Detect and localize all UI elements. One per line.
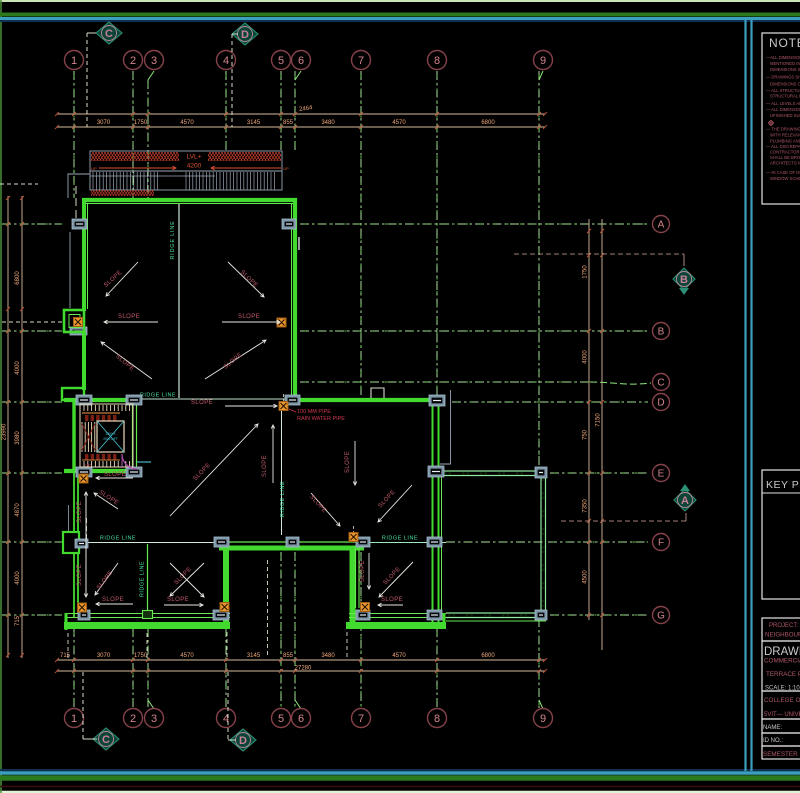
svg-text:COLLEGE OF: COLLEGE OF — [764, 697, 800, 704]
svg-text:5: 5 — [278, 55, 284, 67]
svg-text:4: 4 — [223, 55, 229, 67]
svg-text:2000 X: 2000 X — [105, 432, 116, 436]
svg-text:100 MM PIPE: 100 MM PIPE — [297, 409, 331, 415]
svg-text:6800: 6800 — [481, 653, 495, 659]
svg-text:— ALL DISCREPANCIES IN DR: — ALL DISCREPANCIES IN DR — [766, 144, 800, 149]
svg-text:4870: 4870 — [15, 503, 21, 517]
svg-text:STRUCTURAL DRAWINGS: STRUCTURAL DRAWINGS — [770, 94, 800, 99]
svg-text:B: B — [680, 274, 688, 286]
svg-text:855: 855 — [283, 120, 294, 126]
svg-text:D: D — [657, 398, 664, 409]
svg-text:715: 715 — [60, 653, 71, 659]
svg-text:4000: 4000 — [15, 361, 21, 375]
svg-text:—ALL DIMENSIONS ARE IN: —ALL DIMENSIONS ARE IN — [766, 55, 800, 60]
svg-text:SLOPE: SLOPE — [104, 472, 126, 478]
svg-text:COMMERCIAL BU: COMMERCIAL BU — [764, 658, 800, 665]
svg-text:CONTRACTOR SHALL VERIFY: CONTRACTOR SHALL VERIFY — [770, 150, 800, 155]
svg-text:— ALL LEVELS ARE IN METRES: — ALL LEVELS ARE IN METRES — [766, 101, 800, 106]
svg-text:855: 855 — [283, 653, 294, 659]
svg-text:7150: 7150 — [596, 413, 602, 427]
svg-text:C: C — [105, 28, 113, 40]
svg-text:4200: 4200 — [187, 163, 202, 170]
svg-text:5VIT— UNIVER: 5VIT— UNIVER — [764, 712, 800, 718]
svg-text:2: 2 — [130, 55, 136, 67]
svg-text:2000 LIFT: 2000 LIFT — [103, 437, 118, 441]
svg-text:UP: UP — [283, 166, 289, 171]
svg-text:E: E — [658, 469, 665, 480]
svg-text:3070: 3070 — [97, 653, 111, 659]
svg-text:RIDGE LINE: RIDGE LINE — [140, 393, 176, 399]
svg-text:715: 715 — [15, 615, 21, 626]
svg-text:TERRACE PLA: TERRACE PLA — [766, 671, 800, 678]
svg-text:3980: 3980 — [15, 431, 21, 445]
svg-text:C: C — [102, 734, 110, 746]
svg-text:SLOPE: SLOPE — [102, 597, 124, 603]
svg-text:4000: 4000 — [583, 350, 589, 364]
svg-text:ARCHITECTS NOTICE BEFORE: ARCHITECTS NOTICE BEFORE — [770, 161, 800, 166]
svg-text:3145: 3145 — [247, 120, 261, 126]
svg-text:3480: 3480 — [321, 120, 335, 126]
svg-text:SLOPE: SLOPE — [118, 314, 140, 320]
svg-text:C: C — [657, 378, 664, 389]
svg-text:750: 750 — [583, 429, 589, 440]
svg-text:7: 7 — [358, 713, 364, 725]
svg-text:SHALL BE BROUGHT TO THE: SHALL BE BROUGHT TO THE — [770, 155, 800, 160]
svg-text:7350: 7350 — [583, 499, 589, 513]
svg-text:8: 8 — [434, 713, 440, 725]
svg-text:SLOPE: SLOPE — [77, 501, 83, 523]
svg-text:SEMESTER: SEMESTER — [763, 751, 798, 758]
svg-text:6800: 6800 — [481, 120, 495, 126]
svg-text:RIDGE LINE: RIDGE LINE — [100, 536, 136, 542]
svg-text:RIDGE LINE: RIDGE LINE — [140, 561, 146, 597]
svg-text:NOTES:: NOTES: — [769, 36, 800, 50]
svg-text:3: 3 — [151, 713, 157, 725]
svg-text:— ALL STRUCTURAL DETAILS: — ALL STRUCTURAL DETAILS — [766, 88, 800, 93]
svg-text:KEY PLAN: KEY PLAN — [766, 479, 800, 491]
svg-text:WINDOW SCHEDULE DETAILS: WINDOW SCHEDULE DETAILS — [770, 176, 800, 181]
svg-text:UP: UP — [91, 166, 97, 171]
svg-text:SLOPE: SLOPE — [77, 564, 83, 586]
svg-text:2: 2 — [130, 713, 136, 725]
svg-text:4570: 4570 — [392, 120, 406, 126]
svg-text:4570: 4570 — [180, 120, 194, 126]
svg-text:— THE DRAWING SHALL BE RE: — THE DRAWING SHALL BE RE — [766, 127, 800, 132]
svg-text:3: 3 — [151, 55, 157, 67]
svg-text:LVL+: LVL+ — [187, 154, 202, 161]
svg-text:G: G — [657, 611, 665, 622]
svg-text:23990: 23990 — [2, 423, 8, 440]
svg-text:PLUMBING AND ELECTRICAL: PLUMBING AND ELECTRICAL — [770, 139, 800, 144]
svg-text:6: 6 — [298, 55, 304, 67]
svg-text:PROJECT:: PROJECT: — [769, 623, 798, 629]
svg-text:NEIGHBOURHOOD: NEIGHBOURHOOD — [765, 632, 800, 639]
svg-text:9: 9 — [540, 713, 546, 725]
svg-text:1750: 1750 — [134, 120, 148, 126]
svg-text:9: 9 — [540, 55, 546, 67]
svg-text:1: 1 — [71, 55, 77, 67]
svg-text:4000: 4000 — [15, 571, 21, 585]
svg-text:3145: 3145 — [247, 653, 261, 659]
svg-text:5: 5 — [278, 713, 284, 725]
svg-text:8: 8 — [434, 55, 440, 67]
svg-text:SLOPE: SLOPE — [345, 451, 351, 473]
svg-text:A: A — [681, 495, 689, 507]
svg-text:4570: 4570 — [180, 653, 194, 659]
svg-text:6: 6 — [298, 713, 304, 725]
svg-text:DRAWING:: DRAWING: — [764, 646, 800, 658]
svg-text:F: F — [658, 538, 664, 549]
svg-text:3480: 3480 — [321, 653, 335, 659]
svg-text:RAIN WATER PIPE: RAIN WATER PIPE — [297, 416, 345, 422]
svg-text:1750: 1750 — [583, 265, 589, 279]
svg-text:SLOPE: SLOPE — [238, 314, 260, 320]
svg-text:7: 7 — [358, 55, 364, 67]
svg-text:D: D — [239, 735, 247, 747]
svg-text:SLOPE: SLOPE — [381, 597, 403, 603]
svg-text:WITH RELEVANT SERVICES: WITH RELEVANT SERVICES — [770, 133, 800, 138]
svg-text:— IN CASE OF DOUBT ASK TH: — IN CASE OF DOUBT ASK TH — [766, 170, 800, 175]
svg-text:4570: 4570 — [392, 653, 406, 659]
svg-text:— ALL DIMENSIONS ARE TO U: — ALL DIMENSIONS ARE TO U — [766, 107, 800, 112]
svg-text:D: D — [241, 29, 249, 41]
svg-text:SLOPE: SLOPE — [262, 455, 268, 477]
svg-text:RIDGE LINE: RIDGE LINE — [280, 481, 286, 517]
svg-text:A: A — [658, 220, 665, 231]
svg-text:UFINISHED SURFACES ONLY: UFINISHED SURFACES ONLY — [770, 113, 800, 118]
svg-text:ID NO.:: ID NO.: — [763, 738, 783, 744]
svg-text:6800: 6800 — [15, 271, 21, 285]
svg-text:B: B — [658, 327, 665, 338]
svg-text:4500: 4500 — [583, 570, 589, 584]
svg-text:SLOPE: SLOPE — [360, 560, 366, 582]
svg-text:27280: 27280 — [295, 666, 312, 672]
svg-text:SLOPE: SLOPE — [167, 597, 189, 603]
svg-text:3070: 3070 — [97, 120, 111, 126]
svg-text:1750: 1750 — [134, 653, 148, 659]
svg-text:RIDGE LINE: RIDGE LINE — [382, 536, 418, 542]
svg-text:SLOPE: SLOPE — [191, 400, 213, 406]
svg-text:— DRAWINGS SHALL NOT BE: — DRAWINGS SHALL NOT BE — [766, 75, 800, 80]
svg-text:UP: UP — [85, 463, 91, 468]
svg-text:DIMENSIONS SHALL BE: DIMENSIONS SHALL BE — [770, 67, 800, 72]
svg-text:DIMENSIONS ONLY TO BE: DIMENSIONS ONLY TO BE — [770, 82, 800, 87]
svg-text:1: 1 — [71, 713, 77, 725]
svg-text:MENTIONED IN MM AND: MENTIONED IN MM AND — [770, 61, 800, 66]
svg-text:NAME:: NAME: — [763, 725, 782, 731]
svg-text:RIDGE LINE: RIDGE LINE — [170, 220, 176, 259]
